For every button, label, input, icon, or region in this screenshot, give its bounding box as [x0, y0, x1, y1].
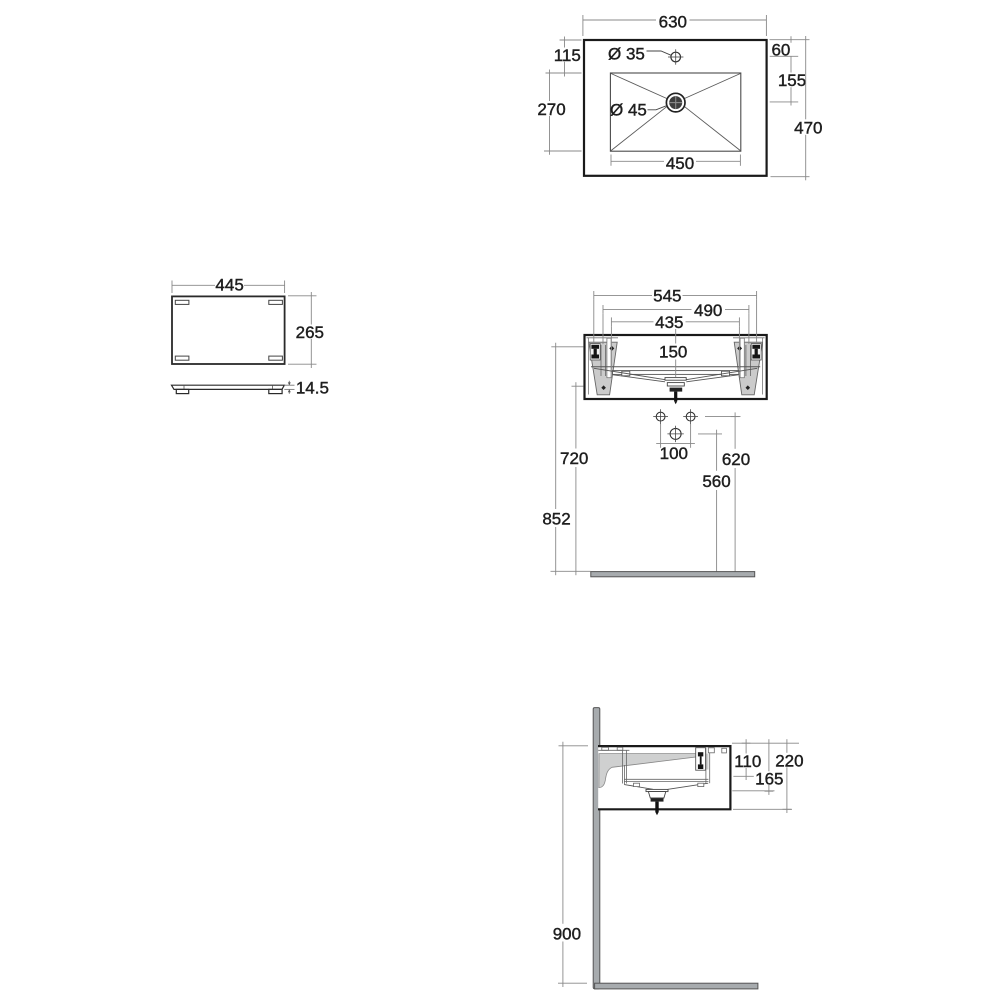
svg-text:265: 265 [296, 323, 324, 342]
svg-text:630: 630 [659, 12, 687, 31]
svg-text:165: 165 [755, 769, 783, 788]
svg-text:450: 450 [666, 154, 694, 173]
svg-text:220: 220 [775, 751, 803, 770]
svg-text:852: 852 [542, 509, 570, 528]
svg-text:150: 150 [659, 343, 687, 362]
svg-text:470: 470 [794, 118, 822, 137]
svg-text:100: 100 [660, 444, 688, 463]
svg-text:Ø 45: Ø 45 [610, 100, 647, 119]
svg-text:560: 560 [702, 472, 730, 491]
svg-text:445: 445 [215, 276, 243, 295]
svg-text:155: 155 [778, 71, 806, 90]
svg-text:620: 620 [722, 450, 750, 469]
svg-text:900: 900 [553, 925, 581, 944]
svg-text:435: 435 [655, 313, 683, 332]
svg-text:490: 490 [694, 301, 722, 320]
svg-text:115: 115 [554, 46, 581, 65]
svg-text:60: 60 [771, 41, 790, 60]
svg-text:720: 720 [560, 449, 588, 468]
svg-text:14.5: 14.5 [296, 378, 329, 397]
svg-text:270: 270 [537, 100, 565, 119]
svg-text:110: 110 [734, 752, 761, 771]
svg-text:Ø 35: Ø 35 [608, 45, 645, 64]
svg-text:545: 545 [653, 287, 681, 306]
